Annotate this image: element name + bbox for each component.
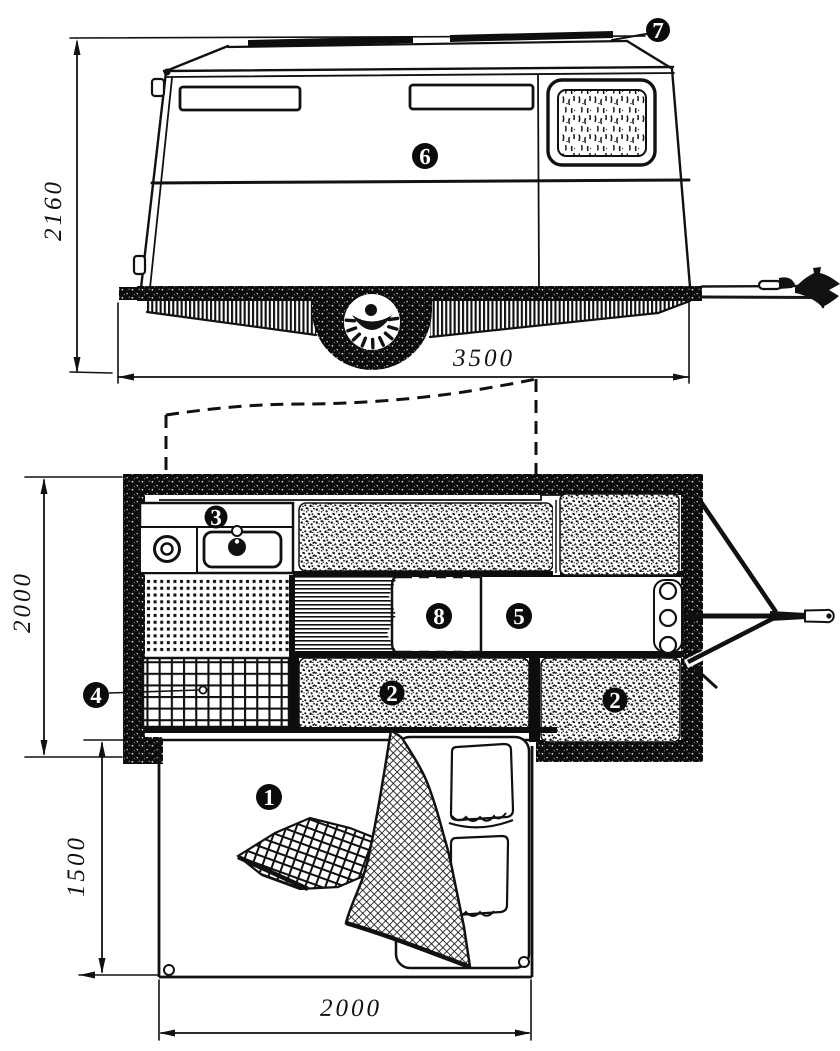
svg-text:5: 5 [513, 604, 525, 629]
svg-text:1: 1 [263, 785, 275, 810]
svg-text:1500: 1500 [63, 835, 90, 897]
svg-text:2000: 2000 [320, 995, 382, 1022]
svg-text:8: 8 [433, 604, 445, 629]
svg-text:2: 2 [609, 688, 621, 713]
svg-text:7: 7 [652, 18, 664, 43]
svg-text:2160: 2160 [40, 179, 67, 241]
svg-text:4: 4 [90, 683, 102, 708]
svg-text:3500: 3500 [452, 345, 515, 372]
svg-text:2: 2 [386, 681, 398, 706]
svg-text:3: 3 [210, 505, 222, 530]
svg-text:6: 6 [419, 144, 431, 169]
svg-text:2000: 2000 [9, 571, 36, 633]
